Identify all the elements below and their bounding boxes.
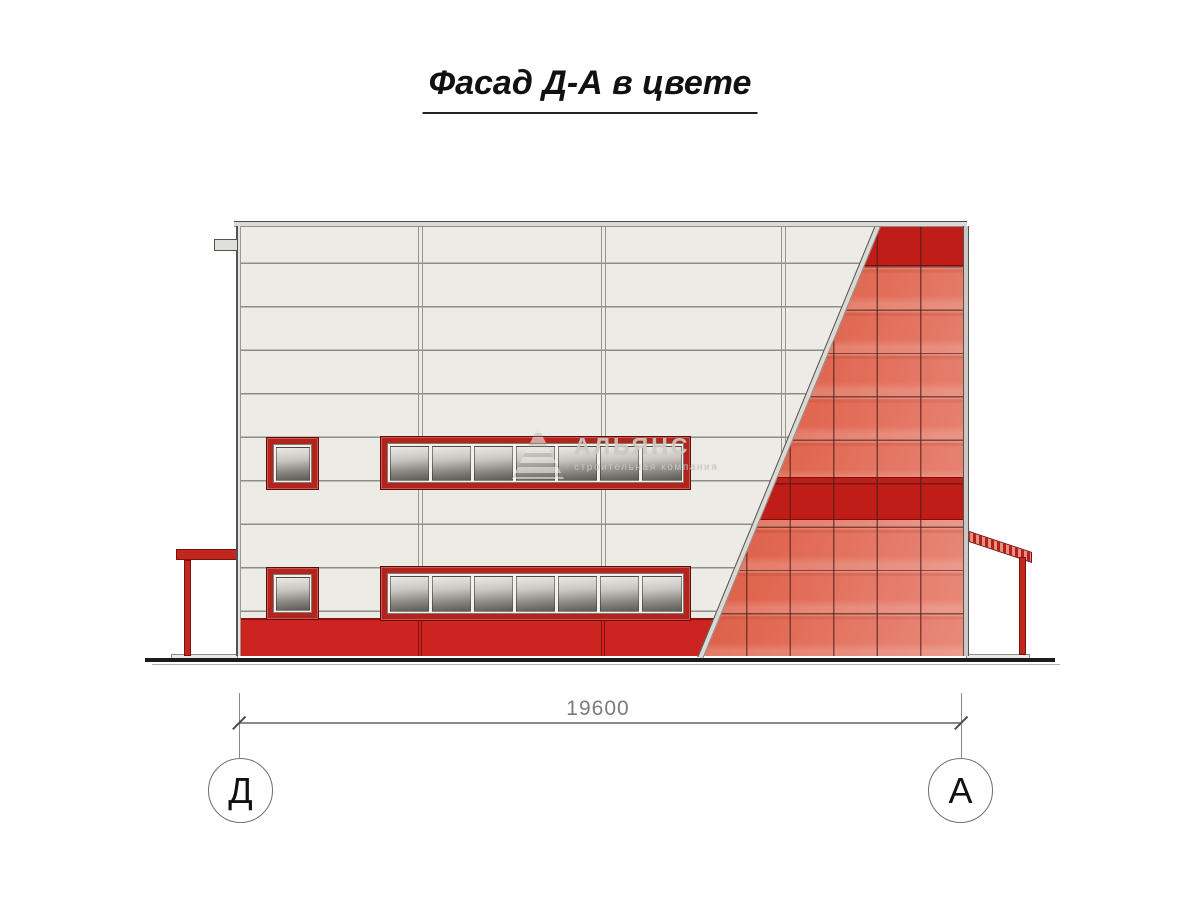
window-pane bbox=[600, 446, 640, 481]
roof-drain-pipe bbox=[214, 239, 238, 251]
facade-joint bbox=[418, 226, 423, 618]
window-glass bbox=[273, 574, 312, 613]
axis-marker-right: А bbox=[928, 758, 993, 823]
window-pane bbox=[276, 447, 310, 481]
window-pane bbox=[390, 446, 430, 481]
window-pane bbox=[516, 446, 556, 481]
facade-joint bbox=[601, 226, 606, 618]
dimension-line bbox=[239, 722, 961, 724]
left-canopy-roof bbox=[176, 549, 237, 560]
page-title: Фасад Д-А в цвете bbox=[423, 64, 758, 114]
left-canopy-post bbox=[184, 560, 191, 656]
window-upper-small bbox=[266, 437, 319, 490]
window-pane bbox=[642, 576, 682, 612]
window-pane bbox=[474, 576, 514, 612]
ground-shadow-line bbox=[152, 664, 1060, 665]
plinth-joint bbox=[601, 621, 605, 656]
window-pane bbox=[516, 576, 556, 612]
window-pane bbox=[642, 446, 682, 481]
window-strip-lower bbox=[380, 566, 691, 621]
window-glass bbox=[273, 444, 312, 483]
extension-line-right bbox=[961, 693, 963, 758]
window-lower-small bbox=[266, 567, 319, 620]
extension-line-left bbox=[239, 693, 241, 758]
window-pane bbox=[474, 446, 514, 481]
window-pane bbox=[558, 576, 598, 612]
window-pane bbox=[558, 446, 598, 481]
window-strip-upper bbox=[380, 436, 691, 490]
window-pane bbox=[600, 576, 640, 612]
window-pane bbox=[390, 576, 430, 612]
ground-line bbox=[145, 658, 1055, 662]
parapet-cap bbox=[234, 221, 967, 227]
axis-marker-left-label: Д bbox=[228, 770, 252, 812]
dimension-label: 19600 bbox=[566, 697, 629, 721]
plinth bbox=[238, 618, 720, 656]
window-glass bbox=[387, 443, 684, 483]
building-left-edge bbox=[236, 226, 241, 656]
window-pane bbox=[432, 446, 472, 481]
axis-marker-right-label: А bbox=[948, 770, 972, 812]
window-glass bbox=[387, 573, 684, 614]
window-pane bbox=[432, 576, 472, 612]
window-pane bbox=[276, 577, 310, 611]
building-right-edge bbox=[963, 226, 969, 656]
elevation-drawing-canvas: Фасад Д-А в цвете bbox=[0, 0, 1200, 900]
right-canopy-post bbox=[1019, 557, 1026, 655]
axis-marker-left: Д bbox=[208, 758, 273, 823]
plinth-joint bbox=[418, 621, 422, 656]
